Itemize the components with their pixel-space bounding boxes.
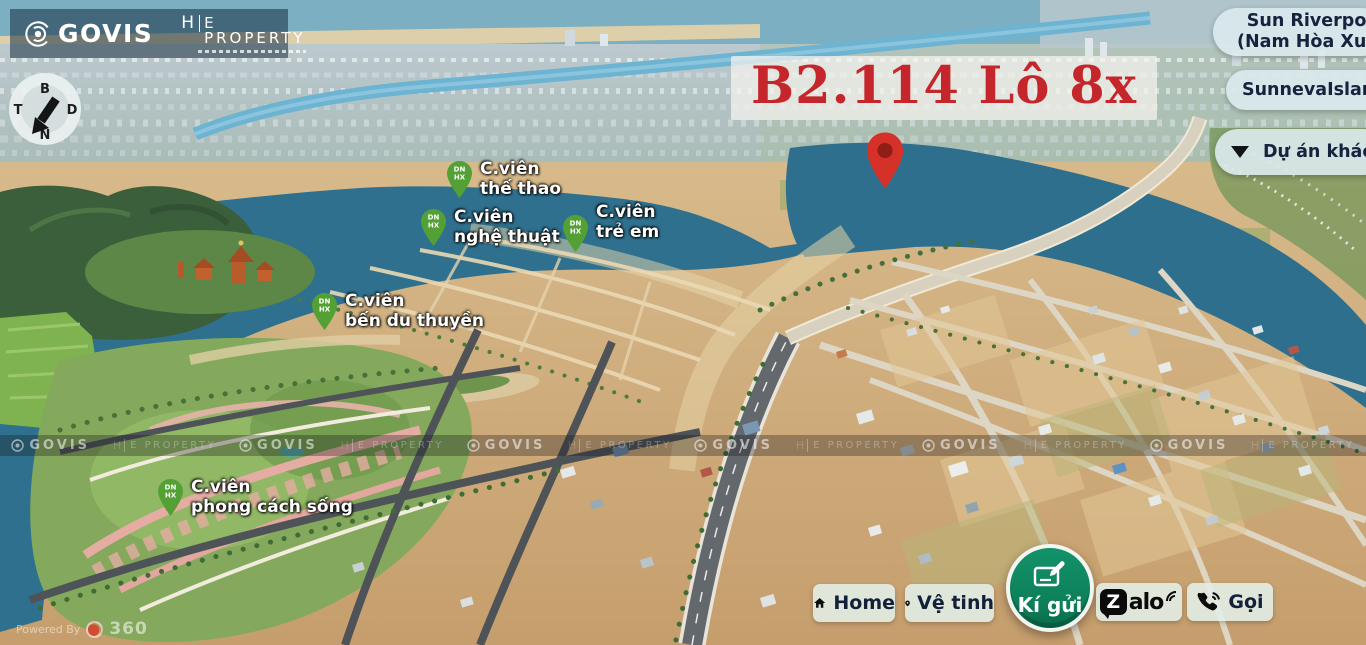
green-park-pin-icon: DN HX xyxy=(446,160,473,199)
home-icon xyxy=(813,591,826,615)
heproperty-logo: H E PROPERTY xyxy=(181,15,305,53)
svg-text:B: B xyxy=(40,82,50,97)
svg-text:DN: DN xyxy=(454,166,466,174)
heproperty-watermark: HE PROPERTY xyxy=(113,439,216,452)
map-pin-icon xyxy=(905,591,910,616)
svg-text:DN: DN xyxy=(570,220,582,228)
heproperty-watermark: HE PROPERTY xyxy=(1023,439,1126,452)
svg-text:DN: DN xyxy=(165,484,177,492)
govis-watermark-icon xyxy=(1150,439,1163,452)
park-marker-phong-cach-song[interactable]: DN HX C.viên phong cách sống xyxy=(157,478,353,517)
green-park-pin-icon: DN HX xyxy=(420,208,447,247)
park-label-line: bến du thuyền xyxy=(345,312,484,332)
park-marker-the-thao[interactable]: DN HX C.viên thế thao xyxy=(446,160,561,199)
satellite-view-button[interactable]: Vệ tinh xyxy=(905,584,994,622)
govis-watermark: GOVIS xyxy=(922,438,1001,453)
consign-button[interactable]: Kí gửi xyxy=(1006,544,1094,632)
govis-logo: GOVIS xyxy=(24,19,153,48)
project-name-line: (Nam Hòa Xuân) xyxy=(1237,32,1366,53)
govis-logo-icon xyxy=(24,20,52,48)
govis-watermark-icon xyxy=(239,439,252,452)
zalo-button[interactable]: Z alo xyxy=(1096,583,1182,621)
park-label-line: trẻ em xyxy=(596,223,659,243)
svg-text:HX: HX xyxy=(570,228,582,236)
map-viewer: GOVIS HE PROPERTY GOVIS HE PROPERTY GOVI… xyxy=(0,0,1366,645)
red-map-pin-icon xyxy=(866,131,904,191)
govis-watermark: GOVIS xyxy=(1150,438,1229,453)
green-park-pin-icon: DN HX xyxy=(311,292,338,331)
park-label-line: C.viên xyxy=(191,478,353,498)
park-label-line: nghệ thuật xyxy=(454,228,560,248)
aerial-photo-background xyxy=(0,0,1366,645)
phone-icon xyxy=(1196,590,1221,615)
watermark-band: GOVIS HE PROPERTY GOVIS HE PROPERTY GOVI… xyxy=(0,435,1366,456)
svg-text:DN: DN xyxy=(319,298,331,306)
park-label-line: thế thao xyxy=(480,180,561,200)
green-park-pin-icon: DN HX xyxy=(157,478,184,517)
heproperty-watermark: HE PROPERTY xyxy=(1251,439,1354,452)
govis-watermark: GOVIS xyxy=(11,438,90,453)
svg-text:HX: HX xyxy=(165,492,177,500)
svg-text:HX: HX xyxy=(319,306,331,314)
park-label-line: C.viên xyxy=(454,208,560,228)
park-marker-tre-em[interactable]: DN HX C.viên trẻ em xyxy=(562,203,659,253)
signal-waves-icon xyxy=(1165,590,1178,602)
heproperty-watermark: HE PROPERTY xyxy=(340,439,443,452)
lot-title: B2.114 Lô 8x xyxy=(731,56,1157,120)
brand-banner: GOVIS H E PROPERTY xyxy=(10,9,288,58)
govis-watermark: GOVIS xyxy=(694,438,773,453)
compass-rose-icon: B N T D xyxy=(8,72,82,146)
park-marker-nghe-thuat[interactable]: DN HX C.viên nghệ thuật xyxy=(420,208,560,247)
svg-text:HX: HX xyxy=(454,174,466,182)
chevron-down-icon xyxy=(1231,146,1249,158)
selected-lot-marker-pin[interactable] xyxy=(866,131,904,191)
govis-watermark-icon xyxy=(922,439,935,452)
svg-text:HX: HX xyxy=(428,222,440,230)
project-name-line: Sun Riverpolis xyxy=(1237,11,1366,32)
govis-watermark-icon xyxy=(11,439,24,452)
heproperty-watermark: HE PROPERTY xyxy=(568,439,671,452)
vr360-logo-icon xyxy=(86,621,103,638)
govis-watermark-icon xyxy=(694,439,707,452)
park-label-line: phong cách sống xyxy=(191,498,353,518)
heproperty-tagline xyxy=(198,50,306,53)
powered-by-credit[interactable]: Powered By 360 xyxy=(16,619,148,639)
zalo-logo-icon: Z xyxy=(1100,589,1127,615)
svg-text:D: D xyxy=(67,103,78,118)
svg-text:T: T xyxy=(14,103,23,118)
svg-text:DN: DN xyxy=(428,214,440,222)
project-button-sunneva-island[interactable]: SunnevaIsland xyxy=(1226,70,1366,110)
project-button-other-projects[interactable]: Dự án khác xyxy=(1215,129,1366,175)
heproperty-watermark: HE PROPERTY xyxy=(796,439,899,452)
green-park-pin-icon: DN HX xyxy=(562,214,589,253)
call-button[interactable]: Gọi xyxy=(1187,583,1273,621)
park-label-line: C.viên xyxy=(480,160,561,180)
govis-watermark: GOVIS xyxy=(239,438,318,453)
home-button[interactable]: Home xyxy=(813,584,895,622)
project-button-sun-riverpolis[interactable]: Sun Riverpolis (Nam Hòa Xuân) xyxy=(1213,8,1366,56)
govis-watermark-icon xyxy=(467,439,480,452)
park-marker-ben-du-thuyen[interactable]: DN HX C.viên bến du thuyền xyxy=(311,292,484,331)
govis-watermark: GOVIS xyxy=(467,438,546,453)
park-label-line: C.viên xyxy=(596,203,659,223)
compass[interactable]: B N T D xyxy=(8,72,82,146)
park-label-line: C.viên xyxy=(345,292,484,312)
document-pen-icon xyxy=(1032,560,1068,590)
govis-logo-text: GOVIS xyxy=(58,19,153,48)
